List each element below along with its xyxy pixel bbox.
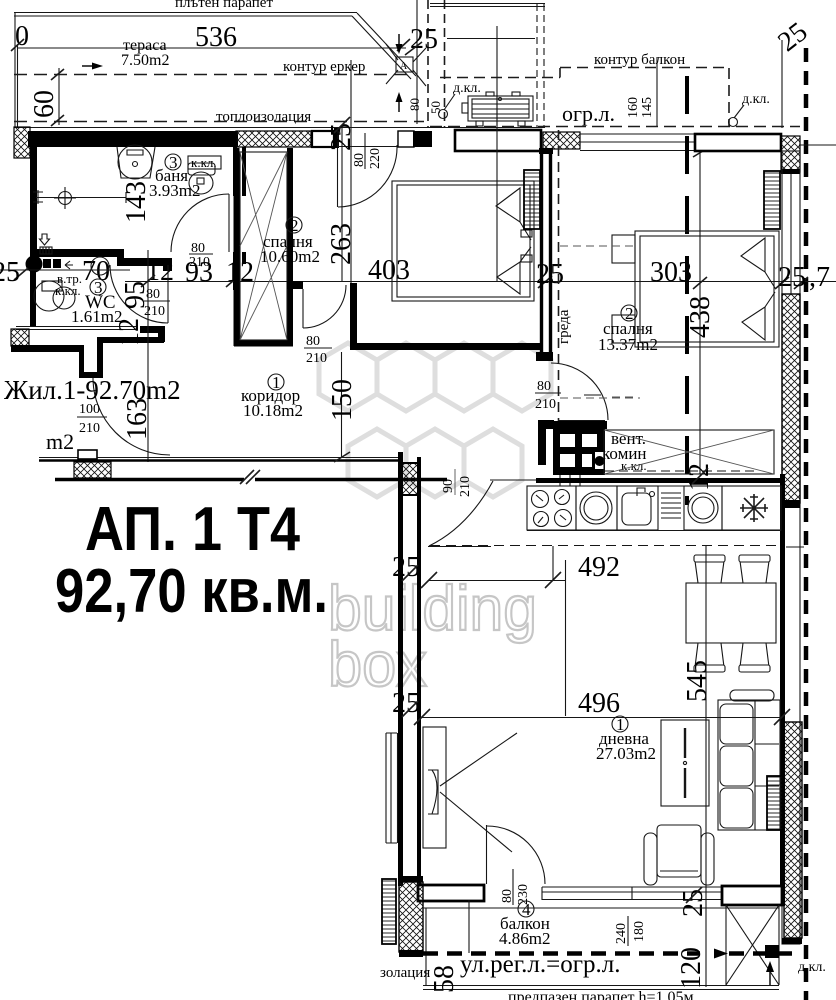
- svg-text:АП. 1 Т4: АП. 1 Т4: [85, 495, 300, 564]
- svg-text:4.86m2: 4.86m2: [499, 929, 550, 948]
- svg-text:топлоизолация: топлоизолация: [216, 109, 311, 125]
- svg-text:210: 210: [79, 421, 100, 436]
- svg-text:предпазен парапет h=1.05м: предпазен парапет h=1.05м: [508, 989, 694, 1000]
- svg-text:80: 80: [407, 98, 422, 111]
- svg-text:7.50m2: 7.50m2: [121, 52, 169, 69]
- svg-text:143: 143: [121, 181, 152, 223]
- svg-text:25: 25: [678, 889, 709, 917]
- svg-text:50: 50: [428, 101, 443, 114]
- svg-text:Жил.1-92.70m2: Жил.1-92.70m2: [4, 375, 181, 405]
- svg-text:545: 545: [682, 660, 713, 702]
- svg-text:120: 120: [676, 947, 707, 989]
- svg-text:огр.л.: огр.л.: [562, 101, 615, 126]
- svg-text:496: 496: [578, 688, 620, 719]
- svg-text:403: 403: [368, 255, 410, 286]
- svg-text:210: 210: [306, 351, 327, 366]
- svg-text:3.93m2: 3.93m2: [149, 181, 200, 200]
- svg-text:д.кл.: д.кл.: [453, 81, 481, 96]
- svg-text:58: 58: [429, 965, 460, 993]
- svg-text:10.60m2: 10.60m2: [260, 247, 320, 266]
- svg-text:плътен парапет: плътен парапет: [175, 0, 273, 11]
- svg-text:150: 150: [327, 379, 358, 421]
- svg-text:0: 0: [15, 21, 29, 52]
- svg-text:контур еркер: контур еркер: [283, 59, 365, 75]
- svg-text:13.37m2: 13.37m2: [598, 335, 658, 354]
- svg-text:180: 180: [632, 921, 647, 942]
- svg-text:90: 90: [441, 479, 456, 493]
- svg-text:80: 80: [306, 334, 320, 349]
- svg-text:210: 210: [535, 397, 556, 412]
- svg-text:25: 25: [326, 123, 357, 151]
- svg-text:,7: ,7: [809, 262, 830, 293]
- svg-text:145: 145: [640, 97, 655, 118]
- svg-text:д.кл.: д.кл.: [798, 960, 826, 975]
- svg-text:25: 25: [536, 259, 564, 290]
- svg-text:263: 263: [326, 223, 357, 265]
- svg-text:60: 60: [29, 90, 60, 118]
- svg-text:A: A: [400, 61, 408, 72]
- svg-text:220: 220: [368, 148, 383, 169]
- svg-text:греда: греда: [556, 309, 572, 344]
- svg-text:95: 95: [120, 281, 151, 309]
- svg-text:25: 25: [410, 24, 438, 55]
- svg-text:160: 160: [626, 97, 641, 118]
- svg-text:210: 210: [189, 255, 210, 270]
- svg-text:m2: m2: [46, 429, 74, 454]
- svg-text:ул.рег.л.=огр.л.: ул.рег.л.=огр.л.: [460, 951, 620, 978]
- svg-text:92,70 кв.м.: 92,70 кв.м.: [55, 557, 328, 626]
- svg-text:492: 492: [578, 552, 620, 583]
- svg-text:10.18m2: 10.18m2: [243, 401, 303, 420]
- svg-text:к.кл.: к.кл.: [55, 283, 81, 298]
- svg-text:контур балкон: контур балкон: [594, 52, 685, 68]
- svg-text:27.03m2: 27.03m2: [596, 744, 656, 763]
- svg-text:536: 536: [195, 22, 237, 53]
- svg-text:д.кл.: д.кл.: [742, 92, 770, 107]
- svg-text:210: 210: [458, 476, 473, 497]
- svg-text:к.кл.: к.кл.: [191, 155, 217, 170]
- svg-text:80: 80: [537, 379, 551, 394]
- svg-text:золация: золация: [380, 965, 430, 981]
- svg-text:240: 240: [614, 923, 629, 944]
- svg-text:25: 25: [0, 257, 20, 288]
